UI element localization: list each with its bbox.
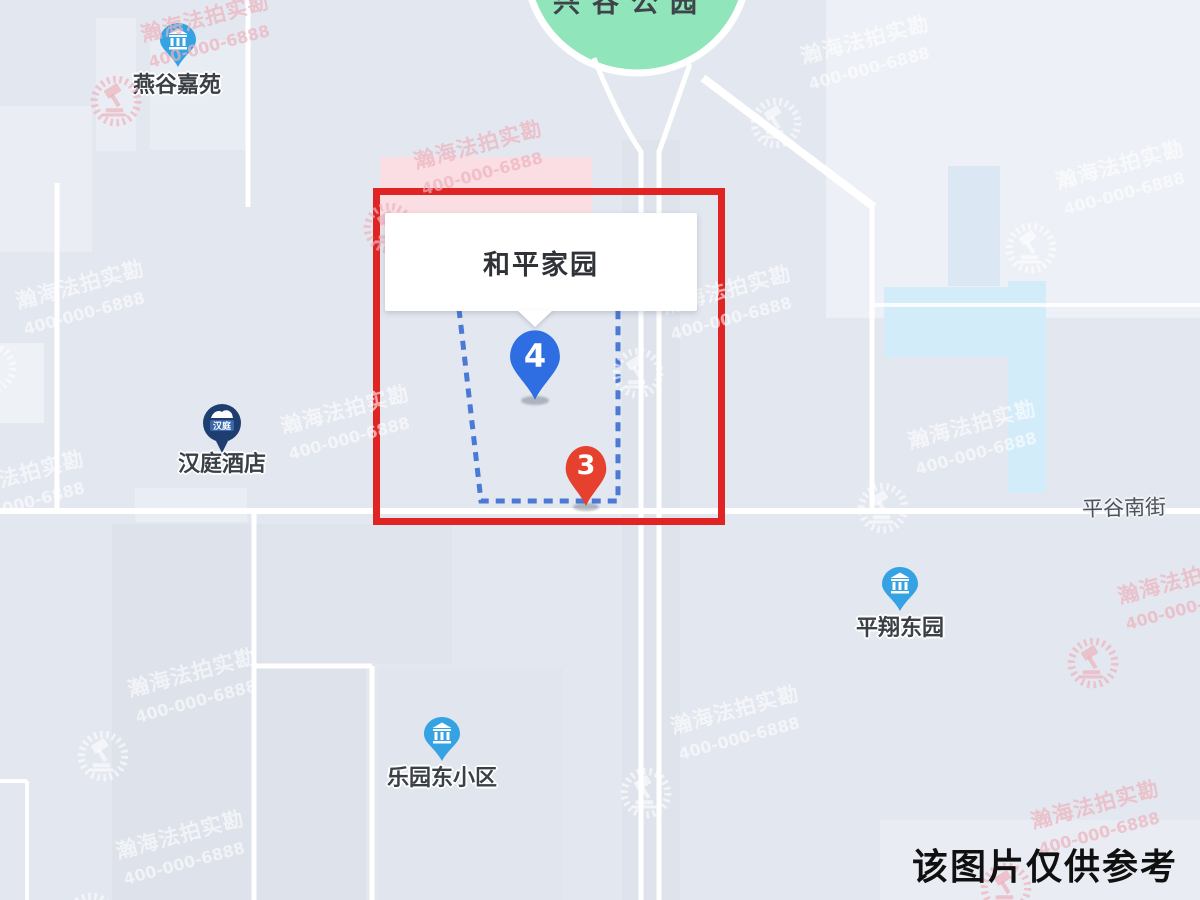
popup-label[interactable]: 和平家园 bbox=[385, 213, 697, 311]
map-canvas[interactable]: 兴谷公园 平谷南街 燕谷嘉苑 汉庭 汉庭酒店 bbox=[0, 0, 1200, 900]
marker-number: 4 bbox=[508, 337, 562, 375]
popup-title: 和平家园 bbox=[385, 213, 697, 311]
map-marker-4[interactable]: 4 bbox=[508, 328, 562, 402]
marker-number: 3 bbox=[564, 450, 608, 481]
popup-pointer bbox=[517, 310, 553, 327]
disclaimer-text: 该图片仅供参考 bbox=[912, 838, 1178, 890]
map-marker-3[interactable]: 3 bbox=[564, 444, 608, 508]
